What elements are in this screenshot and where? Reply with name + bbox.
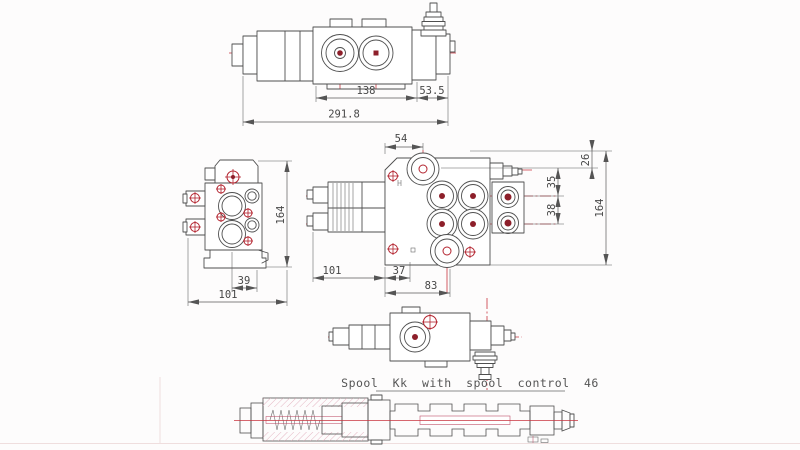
end-view: 164 39 101 [183,160,292,306]
dim-top-offset: 26 [580,154,592,167]
dim-total-width: 291.8 [328,109,360,121]
cad-drawing-page: 138 53.5 291.8 [0,0,800,450]
dim-end-height: 164 [275,206,287,225]
plan-relief-block [492,182,524,234]
plan-view: 54 101 37 83 26 35 38 164 [306,133,612,297]
spool-rod-section [266,417,342,424]
dim-body-width: 138 [357,85,376,97]
dim-port-offset: 39 [238,275,251,287]
dim-end-width: 101 [219,289,238,301]
dim-p-port-offset: 54 [395,133,408,145]
side-view: 138 53.5 291.8 [229,3,458,126]
spool-section-view [234,395,578,444]
spool-note-label: Spool Kk with spool control 46 [341,376,599,390]
dim-cap-width: 53.5 [419,85,444,97]
plan-control-stem [490,163,522,179]
end-view-fittings [183,191,205,235]
dim-port-spacing: 38 [546,204,558,217]
valve-technical-drawing: 138 53.5 291.8 [0,0,800,450]
dim-offset-b: 83 [425,280,438,292]
spool-note: Spool Kk with spool control 46 [341,376,599,391]
dim-plan-height: 164 [594,199,606,218]
dim-spool-cap-length: 101 [323,265,342,277]
lower-control-stem [470,321,515,380]
spool-control-stem [421,3,446,36]
dim-offset-a: 37 [393,265,406,277]
plan-spool-caps [307,182,385,232]
return-spring [270,410,320,430]
dim-port-a-offset: 35 [546,176,558,189]
